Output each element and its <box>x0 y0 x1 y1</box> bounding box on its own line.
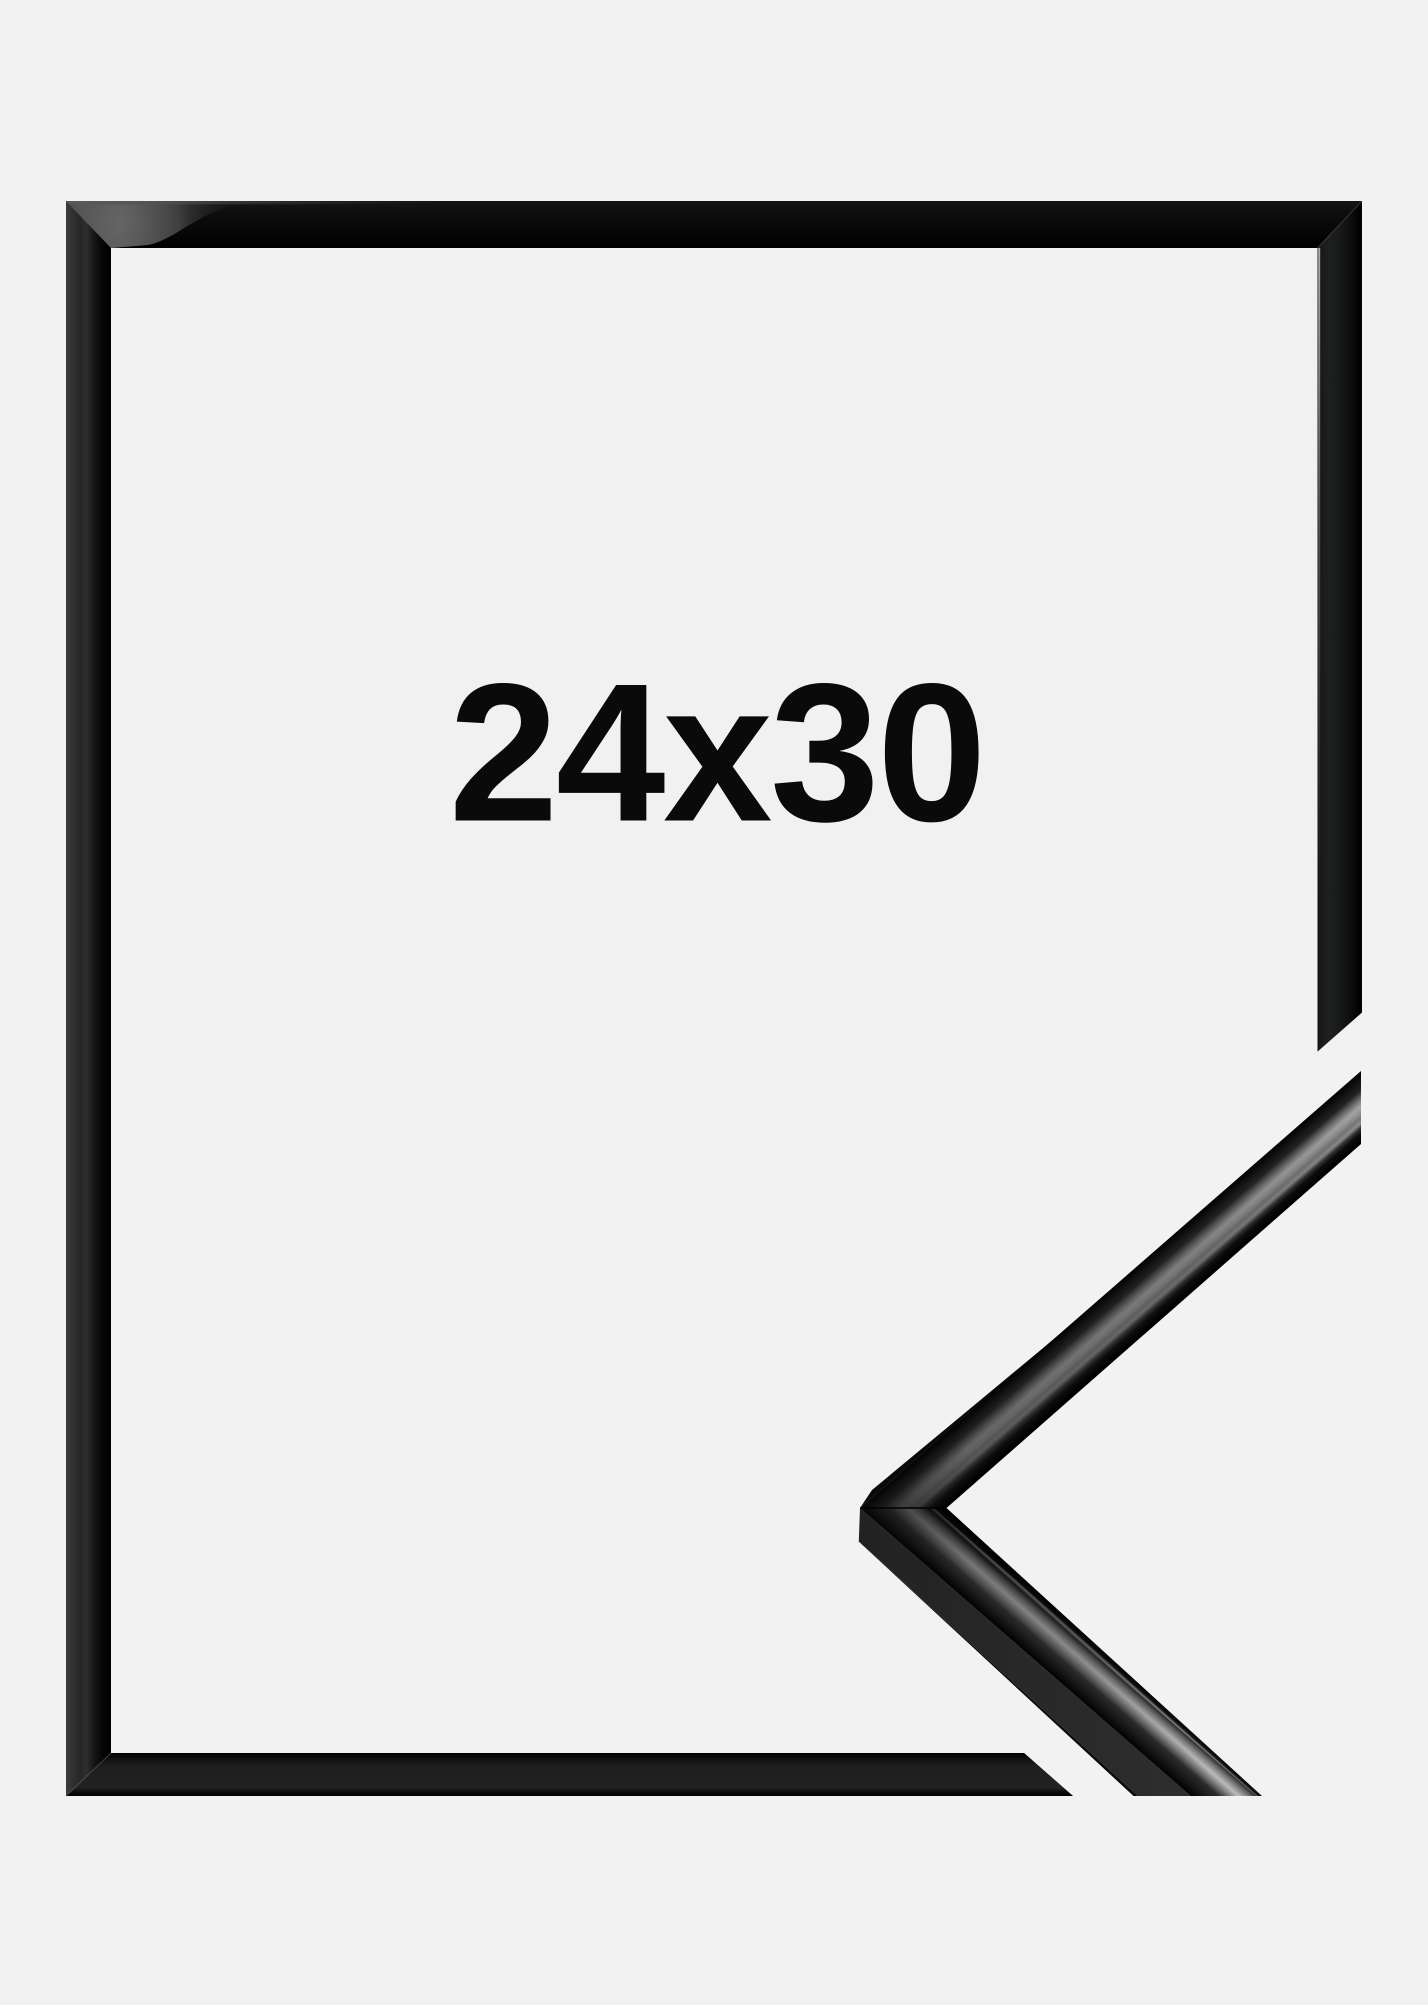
svg-text:24x30: 24x30 <box>449 643 984 863</box>
